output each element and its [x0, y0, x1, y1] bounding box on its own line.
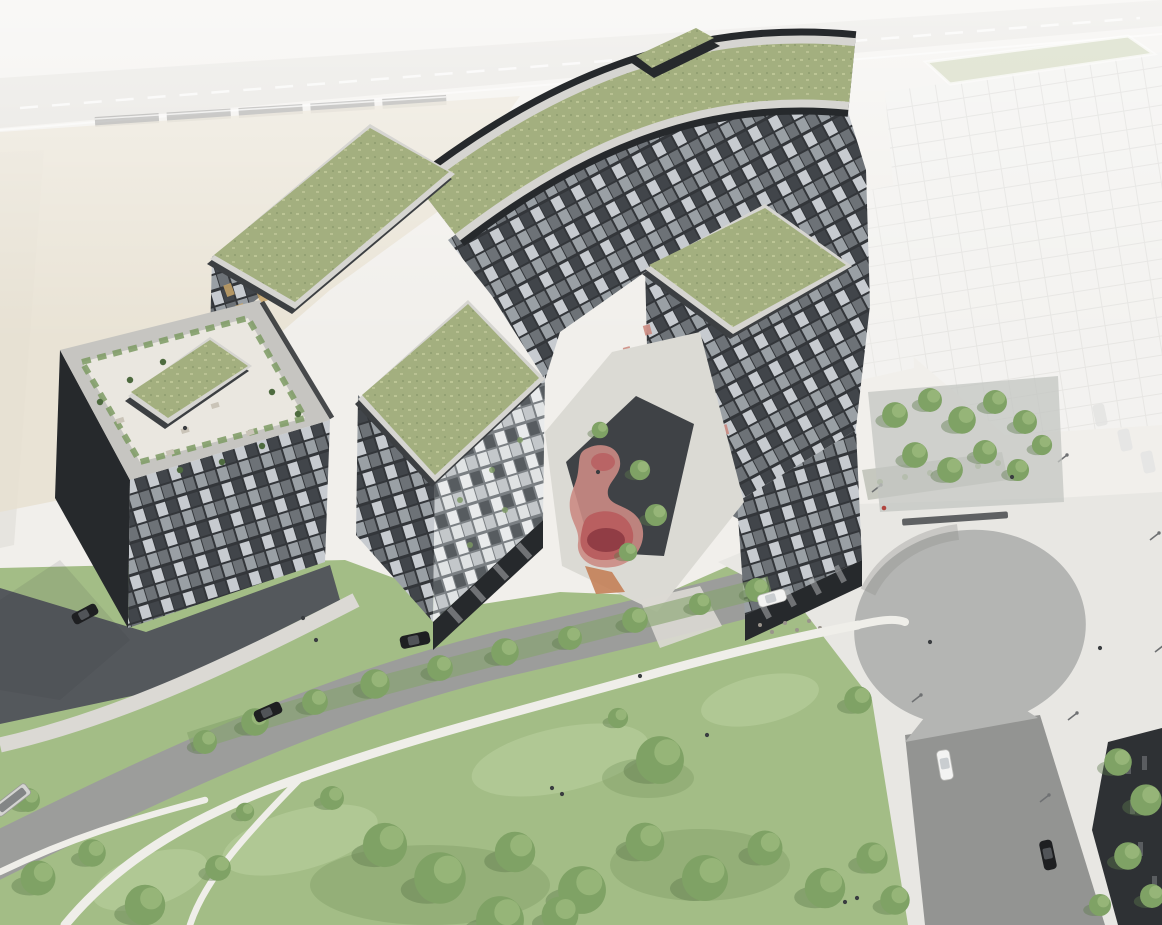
aerial-rendering: [0, 0, 1162, 925]
person: [1098, 646, 1102, 650]
person: [596, 470, 600, 474]
person: [550, 786, 554, 790]
person-on-terrace: [183, 426, 187, 430]
playground-blob-top: [591, 453, 615, 471]
person: [843, 900, 847, 904]
person: [855, 896, 859, 900]
person: [638, 674, 642, 678]
person: [705, 733, 709, 737]
grove: [868, 376, 1064, 512]
person: [560, 792, 564, 796]
person-red: [882, 506, 887, 511]
person: [301, 616, 305, 620]
rendering-stage: [0, 0, 1162, 925]
person: [928, 640, 932, 644]
person: [314, 638, 318, 642]
plaza-connector-path: [858, 620, 905, 625]
person: [1010, 475, 1014, 479]
playground-blob-deep: [587, 528, 625, 552]
